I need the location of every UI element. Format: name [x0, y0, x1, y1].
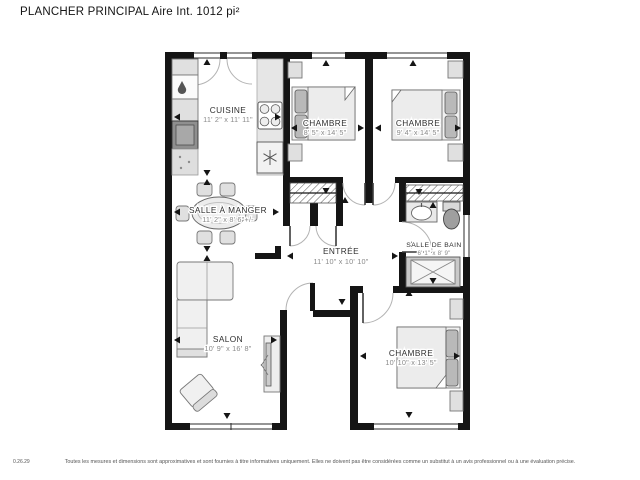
- measure-arrow-icon: [392, 253, 398, 260]
- measure-arrow-icon: [204, 255, 211, 261]
- room-label-chambre1: CHAMBRE: [303, 118, 347, 128]
- salon-window: [190, 423, 272, 430]
- stove-icon: [172, 121, 198, 149]
- measure-arrow-icon: [204, 246, 211, 252]
- disclaimer: Toutes les mesures et dimensions sont ap…: [0, 459, 640, 465]
- measure-arrow-icon: [273, 209, 279, 216]
- fridge-icon: [257, 142, 283, 173]
- room-dims-entree: 11' 10" x 10' 10": [313, 257, 368, 266]
- nightstand: [450, 299, 463, 319]
- measure-arrow-icon: [360, 353, 366, 360]
- tv-unit: [261, 336, 280, 392]
- bedroom1-furniture: [288, 62, 355, 161]
- measure-arrow-icon: [323, 60, 330, 66]
- kitchen-cabinet: [172, 59, 198, 75]
- bedroom2-furniture: [392, 61, 463, 161]
- room-label-cuisine: CUISINE: [210, 105, 247, 115]
- measure-arrow-icon: [406, 412, 413, 418]
- room-dims-salle-a-manger: 11' 2" x 8' 6"+/-: [202, 215, 254, 224]
- kitchen-counter: [172, 149, 198, 175]
- armchair: [179, 373, 218, 412]
- room-label-salon: SALON: [213, 334, 243, 344]
- room-label-chambre3: CHAMBRE: [389, 348, 433, 358]
- measure-arrow-icon: [204, 179, 211, 185]
- closet-bath: [406, 185, 463, 201]
- nightstand: [288, 62, 302, 78]
- dining-chair: [197, 231, 212, 244]
- kitchen-window: [194, 52, 252, 59]
- kitchen-casement-arcs: [194, 59, 252, 85]
- bedroom3-door: [363, 293, 393, 323]
- room-label-salle-de-bain: SALLE DE BAIN: [406, 242, 461, 249]
- room-label-entree: ENTRÉE: [323, 246, 359, 256]
- main-entrance-door: [286, 283, 315, 311]
- measure-arrow-icon: [358, 125, 364, 132]
- floorplan-page: { "title": "PLANCHER PRINCIPAL Aire Int.…: [0, 0, 640, 480]
- bedroom2-door: [373, 183, 395, 205]
- measure-arrow-icon: [204, 59, 211, 65]
- room-label-salle-a-manger: SALLE À MANGER: [189, 205, 267, 215]
- room-dims-cuisine: 11' 2" x 11' 11": [203, 115, 253, 124]
- nightstand: [450, 391, 463, 411]
- closets: [290, 183, 463, 203]
- measure-arrow-icon: [339, 299, 346, 305]
- room-dims-chambre1: 8' 5" x 14' 5": [304, 128, 347, 137]
- entry-closet-doors: [290, 226, 336, 246]
- nightstand: [448, 144, 463, 161]
- dining-chair: [220, 183, 235, 196]
- bathroom-window: [463, 215, 470, 257]
- measure-arrow-icon: [410, 60, 417, 66]
- measure-arrow-icon: [287, 253, 293, 260]
- kitchen-sink-icon: [172, 75, 198, 99]
- measure-arrow-icon: [204, 170, 211, 176]
- room-dims-salle-de-bain: 6' 1" x 8' 9": [417, 250, 450, 257]
- bedroom1-window: [312, 52, 345, 59]
- toilet-icon: [443, 202, 460, 229]
- room-dims-chambre3: 10' 10" x 13' 5": [385, 358, 437, 367]
- nightstand: [288, 144, 302, 161]
- room-dims-chambre2: 9' 4" x 14' 5": [397, 128, 440, 137]
- closet-hall: [290, 183, 336, 203]
- room-dims-salon: 10' 9" x 16' 8": [204, 344, 251, 353]
- dining-chair: [220, 231, 235, 244]
- version-label: 0.26.29: [13, 459, 30, 465]
- room-label-chambre2: CHAMBRE: [396, 118, 440, 128]
- floorplan-svg: CUISINE 11' 2" x 11' 11" CHAMBRE 8' 5" x…: [0, 0, 640, 480]
- measure-arrow-icon: [224, 413, 231, 419]
- bedroom3-window: [374, 423, 458, 430]
- nightstand: [448, 61, 463, 78]
- bedroom2-window: [387, 52, 447, 59]
- measure-arrow-icon: [375, 125, 381, 132]
